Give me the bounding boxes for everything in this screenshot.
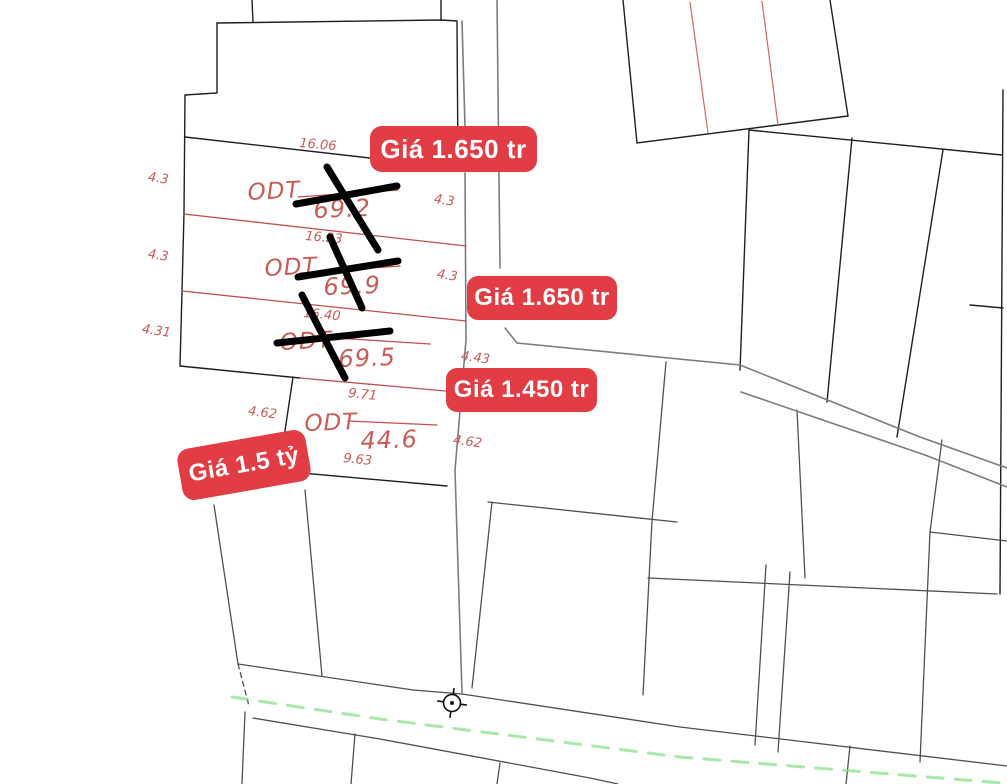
dim-label-right-1: 4.3	[433, 192, 456, 210]
dim-label-top-3: 16.40	[303, 306, 341, 324]
landuse-label-3: ODT	[279, 327, 333, 356]
road-centerline-green	[232, 697, 1002, 783]
dim-label-left-1: 4.3	[147, 170, 170, 188]
dim-label-top-2: 16.23	[305, 229, 343, 247]
price-badge-2: Giá 1.650 tr	[467, 276, 617, 320]
dim-label-top-1: 16.06	[299, 136, 337, 154]
area-value-2: 69.9	[323, 271, 381, 301]
dim-label-right-2: 4.3	[436, 267, 459, 285]
area-value-4: 44.6	[360, 425, 418, 455]
top-right-parcel-red-lines	[690, 1, 778, 133]
cadastral-map: 16.06 4.3 4.3 16.23 4.3 4.3 16.40 4.31 4…	[0, 0, 1007, 784]
landuse-label-4: ODT	[304, 409, 358, 437]
price-badge-1: Giá 1.650 tr	[370, 126, 537, 172]
dim-label-left-2: 4.3	[147, 247, 170, 265]
area-value-3: 69.5	[338, 343, 396, 373]
landuse-label-1: ODT	[247, 177, 301, 206]
price-badge-3: Giá 1.450 tr	[446, 368, 597, 412]
landuse-label-2: ODT	[264, 253, 318, 282]
lane-lines	[455, 0, 1007, 693]
area-value-1: 69.2	[313, 194, 371, 224]
dim-label-top-4: 9.71	[347, 386, 377, 404]
